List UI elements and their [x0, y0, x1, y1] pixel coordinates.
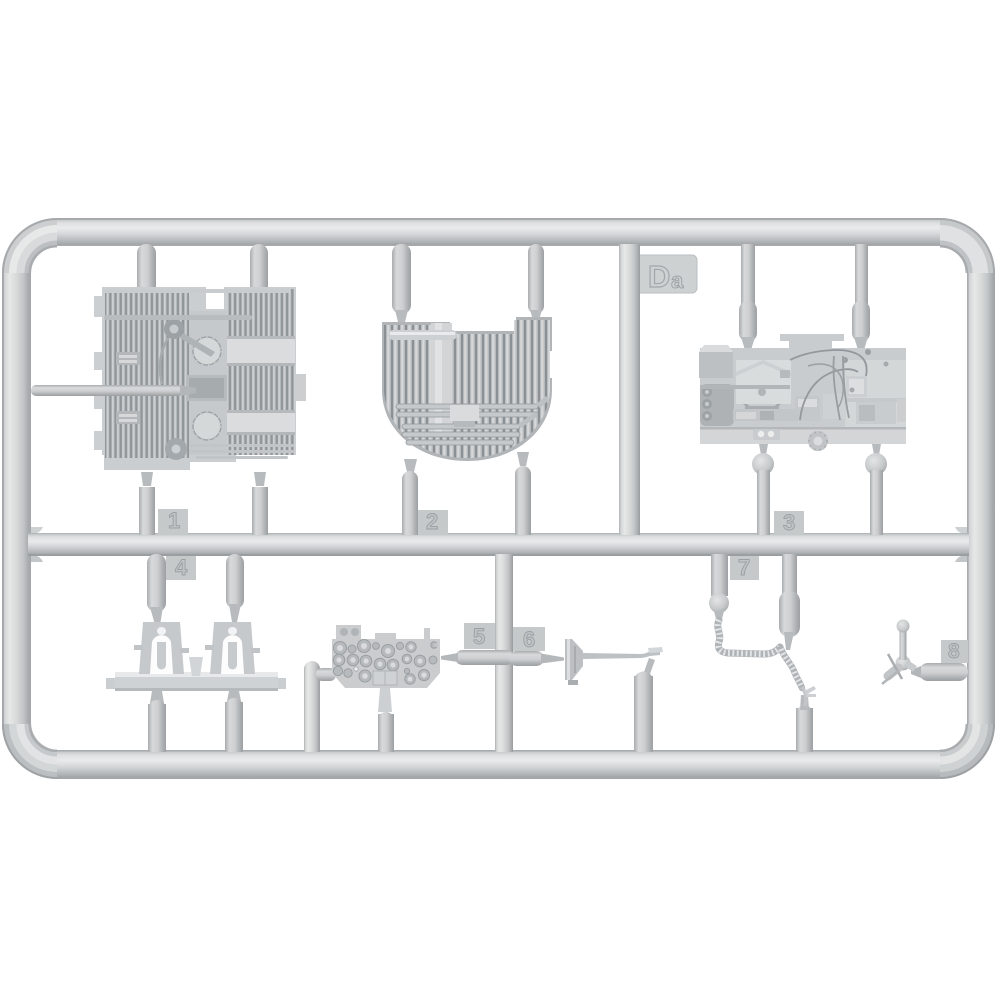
- svg-text:a: a: [671, 268, 684, 293]
- svg-text:4: 4: [175, 555, 188, 580]
- svg-text:1: 1: [168, 508, 180, 533]
- svg-text:3: 3: [783, 510, 795, 535]
- svg-text:D: D: [648, 259, 670, 294]
- svg-text:7: 7: [738, 555, 750, 580]
- svg-text:6: 6: [523, 627, 535, 652]
- svg-text:8: 8: [948, 640, 960, 663]
- svg-text:5: 5: [473, 624, 485, 649]
- svg-text:2: 2: [426, 509, 438, 534]
